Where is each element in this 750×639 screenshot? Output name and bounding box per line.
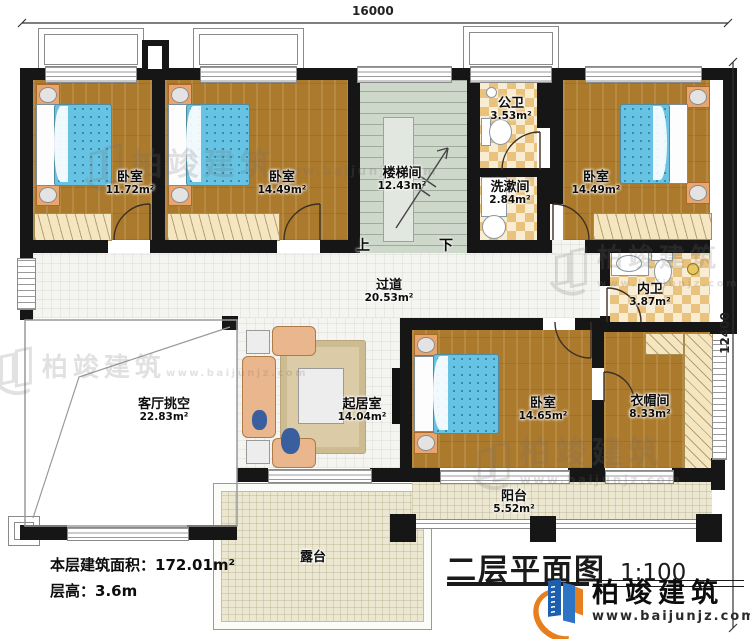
- wall-lamp: [687, 263, 699, 275]
- wall: [575, 318, 600, 330]
- vanity-sink: [616, 255, 642, 272]
- window: [712, 340, 727, 460]
- nightstand: [168, 184, 192, 206]
- wardrobe: [34, 213, 112, 241]
- nightstand: [168, 84, 192, 106]
- nightstand: [686, 86, 710, 108]
- room-label-ensuite-bath: 内卫3.87m²: [629, 283, 670, 309]
- room-label-hallway: 过道20.53m²: [365, 279, 414, 305]
- window: [268, 469, 372, 483]
- room-label-stairwell: 楼梯间12.43m²: [378, 167, 427, 193]
- watermark-logo-icon: [0, 346, 34, 390]
- wall: [187, 525, 237, 540]
- company-logo: 柏竣建筑 www.baijunjz.com: [534, 578, 750, 632]
- wall: [568, 468, 605, 482]
- room-label-washroom: 洗漱间2.84m²: [489, 181, 530, 207]
- nightstand: [414, 334, 438, 356]
- wall: [370, 468, 400, 482]
- floor-plan: 卧室11.72m² 卧室14.49m² 楼梯间12.43m² 公卫3.53m² …: [0, 0, 750, 639]
- wall: [20, 525, 67, 540]
- room-label-public-bath: 公卫3.53m²: [490, 97, 531, 123]
- balcony-column: [696, 514, 722, 542]
- bed-sheet: [433, 356, 448, 430]
- bed-headboard: [36, 104, 56, 186]
- window: [357, 66, 452, 83]
- wall: [537, 168, 550, 240]
- company-url: www.baijunjz.com: [592, 609, 750, 624]
- floor-height-row: 层高：3.6m: [50, 578, 235, 604]
- bay-window: [463, 26, 559, 71]
- wall: [537, 80, 550, 128]
- closet-rack: [645, 333, 684, 355]
- room-label-bedroom-1: 卧室11.72m²: [106, 171, 155, 197]
- wall: [237, 468, 268, 482]
- wall: [550, 80, 563, 204]
- room-label-bedroom-2: 卧室14.49m²: [258, 171, 307, 197]
- wall: [33, 240, 108, 253]
- wall: [600, 322, 710, 332]
- hallway-floor: [33, 253, 600, 318]
- bed-headboard: [668, 104, 688, 184]
- closet-rack: [684, 333, 713, 470]
- company-logo-icon: [534, 578, 586, 632]
- wall: [592, 330, 604, 368]
- wash-basin: [482, 215, 506, 239]
- toilet-bowl: [654, 259, 672, 284]
- wall: [20, 68, 33, 260]
- wall: [150, 240, 277, 253]
- bed-headboard: [414, 356, 435, 432]
- person-figure: [281, 428, 300, 454]
- wall: [152, 80, 165, 240]
- wall: [473, 168, 537, 177]
- wall: [723, 68, 737, 322]
- wall: [467, 240, 552, 253]
- wall: [600, 250, 610, 286]
- wall: [400, 468, 440, 482]
- room-label-terrace: 露台: [300, 551, 326, 565]
- window: [17, 258, 36, 310]
- bay-window: [38, 28, 144, 71]
- bed-sheet: [54, 106, 68, 182]
- wardrobe: [593, 213, 712, 240]
- bed-headboard: [168, 104, 188, 186]
- wardrobe: [167, 213, 280, 241]
- nightstand: [686, 182, 710, 204]
- nightstand: [414, 432, 438, 454]
- side-table: [246, 330, 270, 354]
- company-name: 柏竣建筑: [592, 578, 750, 609]
- side-table: [246, 440, 270, 464]
- window: [585, 66, 702, 83]
- balcony-railing: [400, 519, 716, 529]
- window: [45, 66, 137, 83]
- void-corner-column: [222, 316, 238, 330]
- bed-sheet: [186, 106, 201, 182]
- chimney-flue: [148, 46, 162, 69]
- bed-sheet: [653, 106, 667, 180]
- stair-down-label: 下: [439, 235, 453, 255]
- floor-area-row: 本层建筑面积：172.01m²: [50, 552, 235, 578]
- wall: [400, 318, 543, 330]
- wall: [467, 80, 480, 240]
- balcony-door-window: [440, 470, 570, 484]
- dimension-top: 16000: [352, 4, 394, 18]
- wall: [672, 468, 724, 482]
- balcony-column: [530, 516, 556, 542]
- person-figure: [252, 410, 267, 430]
- wall: [400, 318, 412, 482]
- room-label-cloakroom: 衣帽间8.33m²: [629, 395, 670, 421]
- wall: [320, 240, 360, 253]
- room-label-bedroom-4: 卧室14.65m²: [519, 397, 568, 423]
- window: [67, 527, 189, 541]
- wall: [348, 80, 360, 240]
- bay-window: [193, 28, 304, 71]
- nightstand: [36, 184, 60, 206]
- window: [470, 66, 552, 83]
- room-label-balcony: 阳台5.52m²: [493, 490, 534, 516]
- window: [200, 66, 297, 83]
- room-label-family-room: 起居室14.04m²: [338, 398, 387, 424]
- nightstand: [36, 84, 60, 106]
- room-label-bedroom-3: 卧室14.49m²: [572, 171, 621, 197]
- armchair: [272, 326, 316, 356]
- balcony-column: [390, 514, 416, 542]
- window: [605, 470, 674, 484]
- room-label-living-void: 客厅挑空22.83m²: [138, 398, 190, 424]
- tv: [392, 368, 400, 424]
- floor-stats: 本层建筑面积：172.01m² 层高：3.6m: [50, 552, 235, 605]
- dimension-right: 12400: [718, 312, 732, 354]
- stair-up-label: 上: [356, 235, 370, 255]
